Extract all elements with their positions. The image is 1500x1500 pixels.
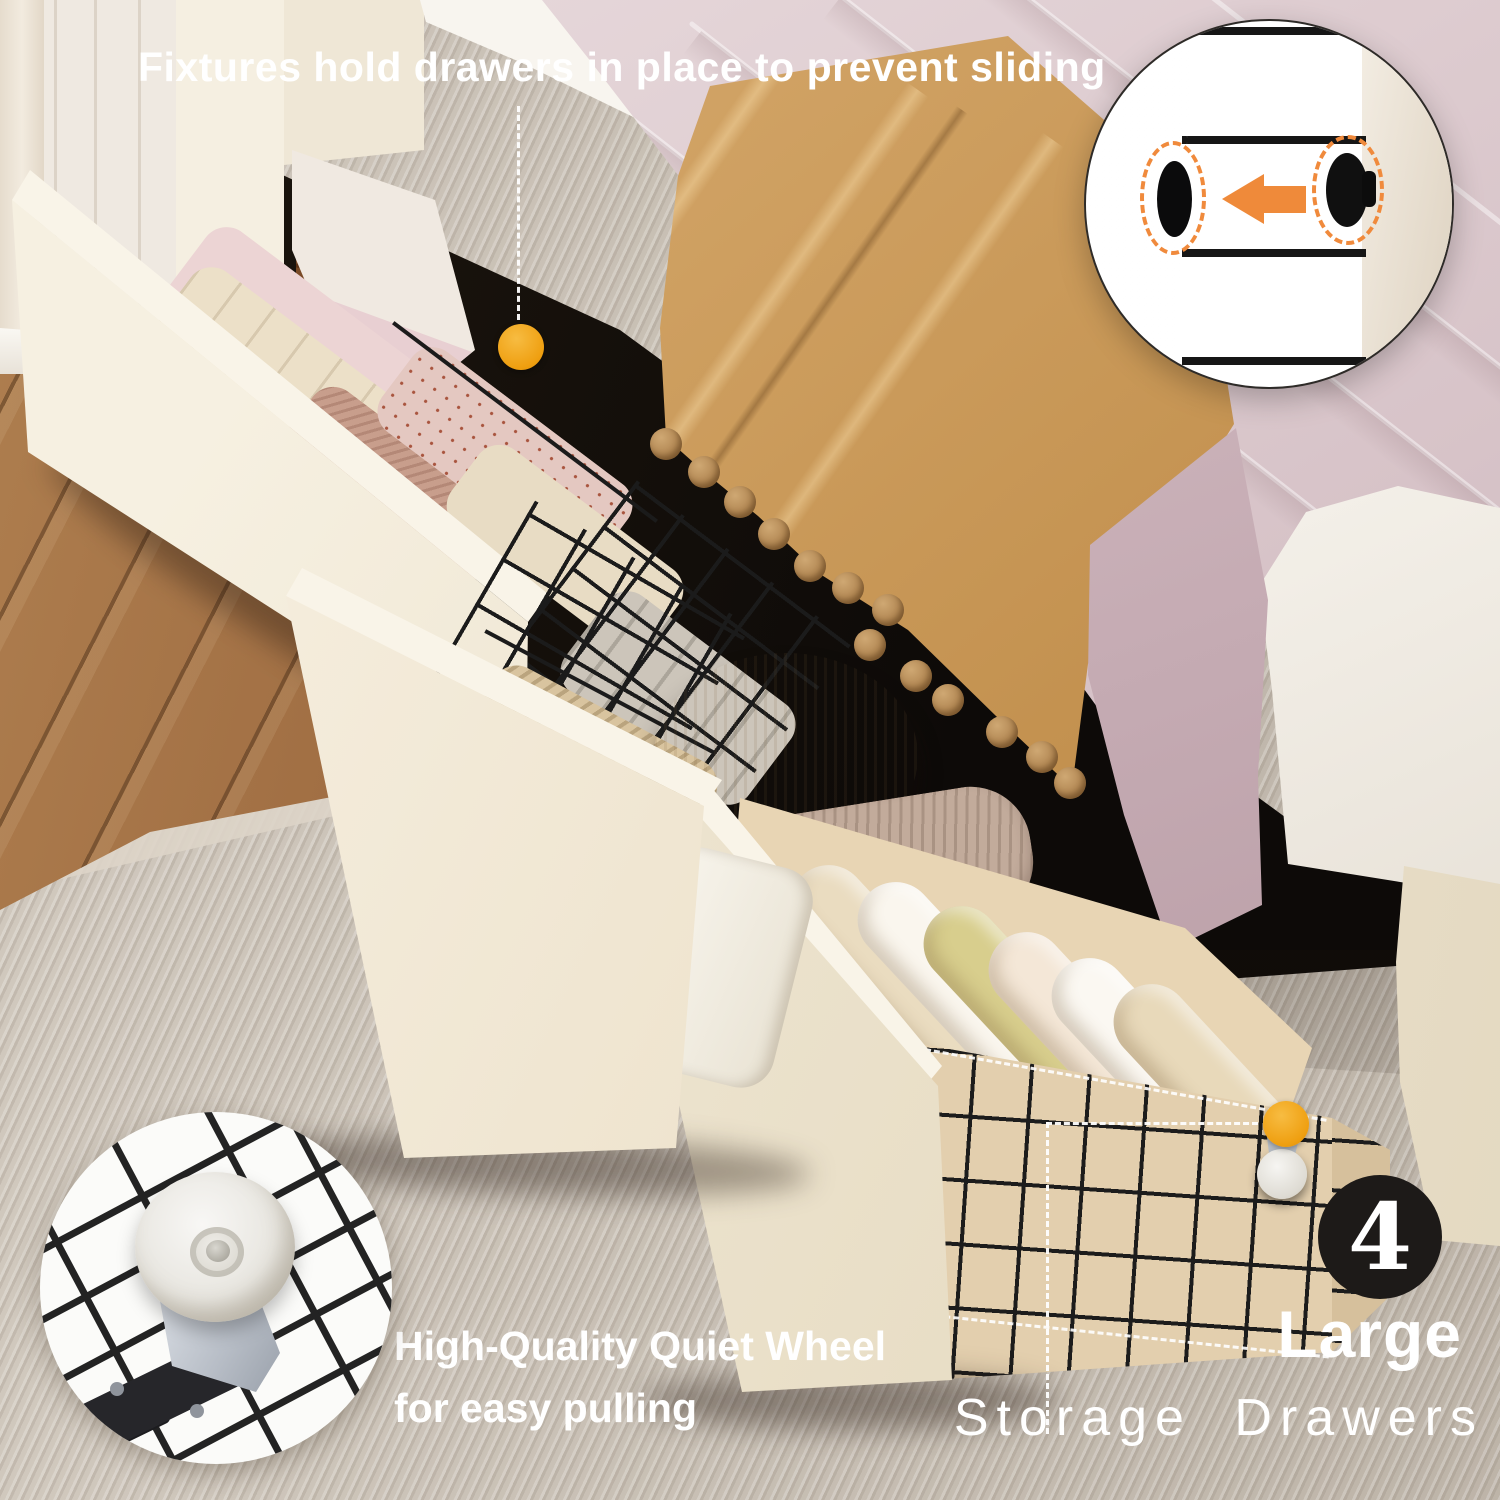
- label-storage-drawers: Storage Drawers: [954, 1388, 1484, 1448]
- product-feature-image: 4 Large Storage Drawers Fixtures hold dr…: [0, 0, 1500, 1500]
- pompom: [1054, 767, 1086, 799]
- pompom: [872, 594, 904, 626]
- arrow-left-shaft: [1262, 186, 1306, 213]
- pompom: [900, 660, 932, 692]
- pompom: [854, 629, 886, 661]
- fixture-callout-dot-icon: [498, 324, 544, 370]
- pompom: [688, 456, 720, 488]
- caster-wheel: [1257, 1149, 1307, 1199]
- arrow-left-icon: [1222, 174, 1264, 224]
- drawer-slat-line: [1182, 357, 1366, 365]
- pompom: [832, 572, 864, 604]
- headline-text: Fixtures hold drawers in place to preven…: [138, 44, 1106, 91]
- pompom: [794, 550, 826, 582]
- pompom: [1026, 741, 1058, 773]
- wheel-callout-line: [1046, 1122, 1258, 1125]
- drawer-count-badge: 4: [1318, 1175, 1442, 1299]
- bolt: [190, 1404, 204, 1418]
- pompom: [986, 716, 1018, 748]
- bolt: [110, 1382, 124, 1396]
- fixture-detail-inset: [1084, 19, 1454, 389]
- wheel-callout-line: [1046, 1122, 1049, 1434]
- pompom: [724, 486, 756, 518]
- pompom: [758, 518, 790, 550]
- pompom: [932, 684, 964, 716]
- fixture-callout-line: [517, 106, 520, 320]
- drawer-slat-line: [1182, 27, 1366, 35]
- drawer-count-number: 4: [1348, 1183, 1412, 1291]
- wheel-caption: High-Quality Quiet Wheel for easy pullin…: [394, 1316, 886, 1439]
- caster-wheel-screw: [206, 1240, 230, 1262]
- dashed-ellipse-icon: [1140, 141, 1206, 255]
- wheel-callout-dot-icon: [1263, 1101, 1309, 1147]
- dashed-ellipse-icon: [1312, 135, 1384, 245]
- drawer-slat-line: [1182, 249, 1366, 257]
- wheel-caption-line2: for easy pulling: [394, 1378, 886, 1440]
- wheel-caption-line1: High-Quality Quiet Wheel: [394, 1316, 886, 1378]
- wheel-detail-inset: [40, 1112, 392, 1464]
- pompom: [650, 428, 682, 460]
- label-large: Large: [1277, 1296, 1462, 1372]
